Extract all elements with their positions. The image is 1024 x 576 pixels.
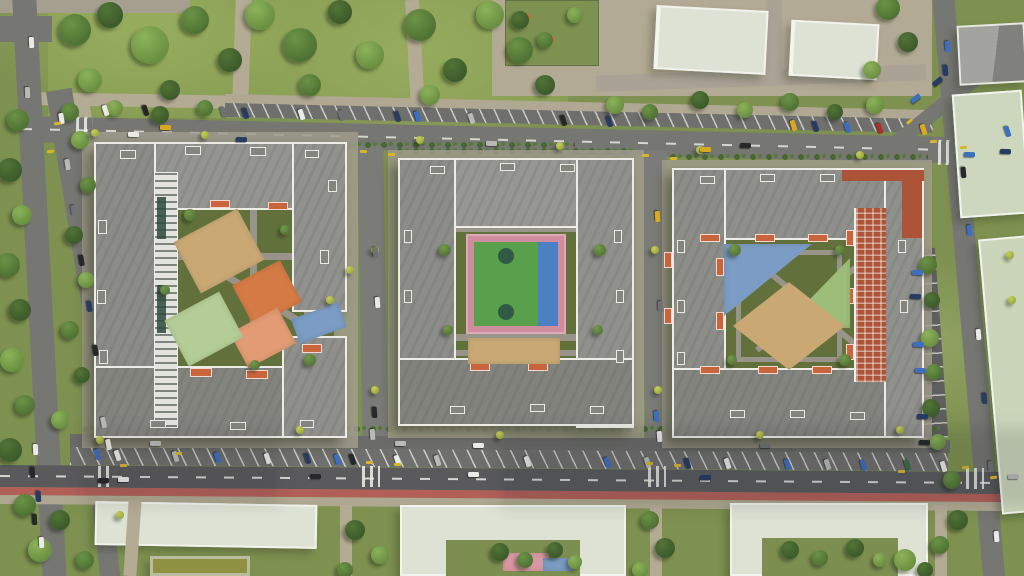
tree	[371, 546, 389, 564]
tree	[337, 562, 353, 576]
tree	[491, 543, 509, 561]
tree	[91, 129, 99, 137]
crosswalk-south-west	[98, 466, 114, 487]
tree	[0, 158, 22, 182]
car	[486, 141, 497, 146]
tree	[729, 244, 741, 256]
crosswalk-north-east	[938, 140, 955, 165]
tree	[691, 91, 709, 109]
car	[33, 444, 39, 455]
car	[236, 137, 247, 142]
roof-box	[616, 350, 624, 363]
tree	[0, 438, 22, 462]
roof-box	[97, 290, 106, 304]
tree	[250, 360, 260, 370]
tree	[1006, 251, 1014, 259]
tree	[160, 80, 180, 100]
northeast-pale-building	[952, 90, 1024, 219]
tree	[345, 520, 365, 540]
car	[988, 461, 994, 472]
car	[913, 342, 924, 347]
tree	[76, 551, 94, 569]
roof-box	[530, 404, 545, 412]
roof-box	[328, 180, 337, 192]
car	[917, 414, 928, 419]
road-marking	[960, 146, 967, 150]
khaki-sports-court	[150, 556, 250, 576]
car	[967, 225, 973, 236]
car	[943, 65, 949, 76]
roof-box	[677, 240, 685, 253]
tree	[439, 244, 451, 256]
crosswalk-south-mid	[362, 466, 380, 487]
road-marking	[674, 464, 681, 467]
car	[910, 294, 921, 299]
crosswalk-south-east	[648, 466, 666, 487]
tree	[835, 245, 845, 255]
tree	[51, 411, 69, 429]
car	[30, 467, 36, 478]
tree	[511, 11, 529, 29]
tree	[931, 536, 949, 554]
entrance-canopy	[664, 308, 672, 324]
roof-box	[305, 150, 319, 158]
basketball-key-south	[498, 304, 514, 320]
car	[29, 37, 35, 48]
tree	[71, 131, 89, 149]
car	[961, 167, 967, 178]
car	[375, 297, 381, 308]
road-marking	[120, 464, 127, 467]
entrance-canopy	[808, 234, 828, 242]
tree	[245, 0, 275, 30]
tree	[756, 431, 764, 439]
tree	[420, 85, 440, 105]
tree	[873, 553, 887, 567]
roof-box	[230, 422, 246, 430]
entrance-canopy	[716, 312, 724, 330]
road-marking	[366, 461, 373, 464]
tree	[131, 26, 169, 64]
tree	[151, 106, 169, 124]
roof-box	[430, 166, 445, 174]
tree	[568, 555, 582, 569]
tree	[894, 549, 916, 571]
roof-box	[120, 150, 136, 159]
tree	[863, 61, 881, 79]
car	[654, 411, 660, 422]
sports-court	[466, 234, 566, 334]
roof-box	[900, 300, 908, 313]
tree	[116, 511, 124, 519]
car	[473, 443, 484, 448]
crosswalk-south-far-east	[966, 468, 984, 489]
car	[1008, 474, 1019, 479]
road-marking	[670, 157, 677, 160]
roof-box	[898, 240, 906, 253]
tree	[14, 494, 36, 516]
tree	[97, 2, 123, 28]
tree	[356, 41, 384, 69]
car	[945, 41, 951, 52]
car	[118, 477, 129, 482]
top-left-stub-road	[0, 16, 52, 42]
car	[25, 87, 31, 98]
roof-box	[677, 300, 685, 313]
car	[468, 472, 479, 477]
car	[658, 301, 664, 312]
aerial-render-residential-complex	[0, 0, 1024, 576]
car	[39, 537, 45, 548]
car	[915, 368, 926, 373]
tree	[7, 109, 29, 131]
tree	[781, 93, 799, 111]
roof-box	[404, 230, 412, 243]
tree	[926, 364, 942, 380]
tree	[651, 246, 659, 254]
road-marking	[990, 476, 997, 480]
entrance-canopy	[846, 230, 854, 246]
road-marking	[47, 150, 54, 154]
tree	[184, 209, 196, 221]
tree	[856, 151, 864, 159]
roof-box	[677, 352, 685, 365]
tree	[593, 325, 603, 335]
tree	[567, 7, 583, 23]
tree	[0, 348, 24, 372]
car	[982, 393, 988, 404]
tree	[416, 136, 424, 144]
car	[700, 147, 711, 152]
car	[128, 132, 139, 137]
roof-box	[250, 147, 266, 156]
tree	[443, 58, 467, 82]
car	[372, 407, 378, 418]
road-marking	[360, 150, 367, 153]
tree	[537, 32, 553, 48]
tree	[346, 266, 354, 274]
tree	[404, 9, 436, 41]
roof-box	[404, 290, 412, 303]
tree	[74, 367, 90, 383]
car	[655, 211, 661, 222]
entrance-canopy	[302, 344, 322, 353]
road-marking	[646, 462, 653, 465]
car	[976, 329, 982, 340]
tree	[632, 562, 648, 576]
tree	[326, 296, 334, 304]
playground-patch	[468, 338, 560, 364]
tree	[299, 74, 321, 96]
tree	[59, 14, 91, 46]
tree	[96, 436, 104, 444]
tree	[80, 177, 96, 193]
entrance-canopy	[190, 368, 212, 377]
roof-box	[450, 406, 465, 414]
roof-box	[616, 290, 624, 303]
car	[760, 443, 771, 448]
entrance-canopy	[755, 234, 775, 242]
car	[370, 429, 376, 440]
tree	[654, 386, 662, 394]
building-2-south-wing	[398, 358, 634, 426]
tree	[371, 386, 379, 394]
roof-box	[790, 410, 805, 418]
roof-box	[185, 146, 201, 155]
tree	[443, 325, 453, 335]
tree	[197, 100, 213, 116]
tree	[201, 131, 209, 139]
tree	[78, 68, 102, 92]
tree	[218, 48, 242, 72]
entrance-canopy	[246, 370, 268, 379]
tree	[65, 226, 83, 244]
tree	[304, 354, 316, 366]
roof-box	[500, 163, 515, 171]
roof-box	[320, 250, 329, 264]
entrance-canopy	[664, 252, 672, 268]
road-marking	[394, 463, 401, 466]
car	[373, 247, 379, 258]
basketball-key-north	[498, 248, 514, 264]
car	[964, 152, 975, 157]
car	[700, 475, 711, 480]
entrance-canopy	[716, 258, 724, 276]
roof-box	[614, 230, 622, 243]
building-3-brick-corner	[902, 170, 922, 238]
tree	[556, 142, 564, 150]
roof-box	[98, 220, 107, 234]
entrance-canopy	[268, 202, 288, 210]
car	[1000, 149, 1011, 154]
roof-box	[590, 406, 604, 414]
tree	[507, 37, 533, 63]
tree	[547, 542, 563, 558]
tree	[296, 426, 304, 434]
tree	[1008, 296, 1016, 304]
entrance-canopy	[758, 366, 778, 374]
entrance-canopy	[210, 200, 230, 208]
car	[32, 514, 38, 525]
tree	[476, 1, 504, 29]
tree	[642, 104, 658, 120]
tree	[517, 552, 533, 568]
road-marking	[388, 153, 395, 156]
road-marking	[642, 154, 649, 157]
tree	[812, 550, 828, 566]
building-3-brick-facade	[854, 208, 886, 382]
tree	[655, 538, 675, 558]
car	[919, 440, 930, 445]
car	[395, 441, 406, 446]
road-marking	[898, 470, 905, 473]
tree	[917, 562, 933, 576]
roof-box	[820, 174, 835, 182]
tree	[606, 96, 624, 114]
car	[160, 125, 171, 130]
tree	[594, 244, 606, 256]
sports-court-blue-section	[538, 242, 558, 326]
car	[994, 531, 1000, 542]
tree	[727, 355, 737, 365]
road-marking	[962, 466, 969, 470]
tree	[866, 96, 884, 114]
car	[36, 491, 42, 502]
tree	[160, 285, 170, 295]
tree	[496, 431, 504, 439]
tree	[328, 0, 352, 24]
tree	[924, 292, 940, 308]
roof-box	[730, 410, 745, 418]
car	[657, 431, 663, 442]
tree	[61, 321, 79, 339]
tree	[535, 75, 555, 95]
car	[150, 441, 161, 446]
roof-box	[760, 174, 775, 182]
entrance-canopy	[700, 366, 720, 374]
car	[98, 478, 109, 483]
entrance-canopy	[812, 366, 832, 374]
tree	[839, 354, 851, 366]
tree	[896, 426, 904, 434]
tree	[898, 32, 918, 52]
car	[740, 143, 751, 148]
car	[310, 474, 321, 479]
northeast-roofed-building	[956, 22, 1024, 85]
tree	[781, 541, 799, 559]
tree	[15, 395, 35, 415]
road-marking	[175, 452, 182, 455]
entrance-canopy	[700, 234, 720, 242]
north-pale-building-1	[653, 5, 768, 75]
tree	[930, 434, 946, 450]
tree	[943, 471, 961, 489]
building-1-east-wing-upper	[292, 142, 347, 312]
road-marking	[930, 140, 937, 144]
tree	[737, 102, 753, 118]
tree	[948, 510, 968, 530]
tree	[283, 28, 317, 62]
tree	[827, 104, 843, 120]
roof-box	[150, 420, 166, 428]
car	[912, 270, 923, 275]
tree	[181, 6, 209, 34]
tree	[280, 225, 290, 235]
facade-glass-1	[157, 197, 166, 239]
tree	[12, 205, 32, 225]
roof-box	[99, 350, 108, 364]
tree	[50, 510, 70, 530]
roof-box	[560, 164, 575, 172]
tree	[9, 299, 31, 321]
roof-box	[850, 412, 865, 420]
building-1-inner-facade	[154, 172, 178, 428]
tree	[78, 272, 94, 288]
roof-box	[700, 176, 715, 184]
tree	[641, 511, 659, 529]
tree	[0, 253, 20, 277]
south-road-centerline	[0, 475, 1024, 484]
tree	[846, 539, 864, 557]
